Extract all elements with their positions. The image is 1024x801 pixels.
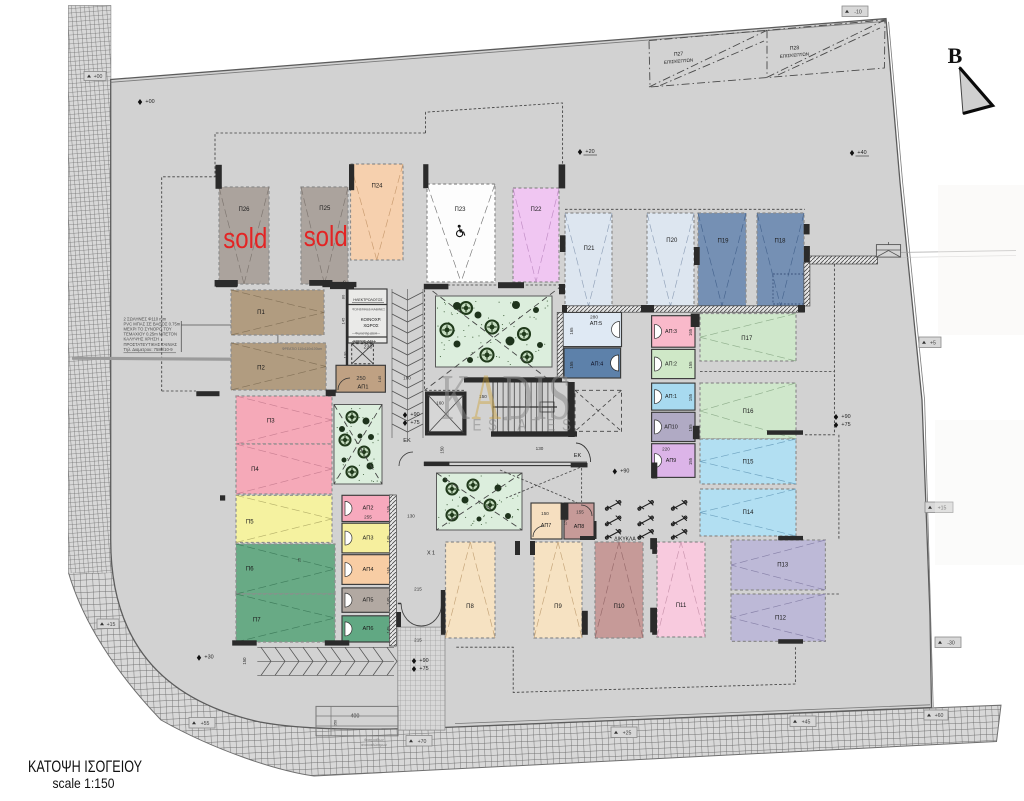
svg-text:+15: +15 — [107, 622, 116, 628]
svg-text:-30: -30 — [947, 640, 955, 646]
svg-text:155: 155 — [688, 393, 693, 401]
svg-text:Π23: Π23 — [454, 207, 466, 213]
svg-text:ΦΡΕΑΤΙΟ 110x110x100cm: ΦΡΕΑΤΙΟ 110x110x100cm — [282, 347, 322, 351]
svg-text:Π10: Π10 — [613, 604, 625, 610]
svg-text:-10: -10 — [854, 9, 862, 15]
svg-text:80: 80 — [341, 294, 346, 299]
svg-text:+75: +75 — [841, 422, 850, 428]
svg-text:Π13: Π13 — [777, 563, 789, 569]
svg-text:ανακυκλώσιμων: ανακυκλώσιμων — [361, 743, 387, 747]
svg-text:220: 220 — [662, 447, 670, 452]
svg-text:Π28: Π28 — [790, 45, 800, 52]
svg-text:050: 050 — [334, 720, 338, 726]
svg-text:ΚΟΙΝΟΧΡ.: ΚΟΙΝΟΧΡ. — [361, 317, 382, 322]
svg-text:+90: +90 — [410, 412, 419, 418]
svg-text:+5: +5 — [930, 340, 936, 346]
svg-text:Χ 1: Χ 1 — [427, 551, 435, 557]
svg-text:Π24: Π24 — [371, 184, 383, 190]
svg-text:Π12: Π12 — [775, 616, 787, 622]
svg-text:Π5: Π5 — [246, 520, 254, 526]
svg-text:ΑΠ:1: ΑΠ:1 — [665, 394, 677, 400]
svg-text:+40: +40 — [857, 150, 866, 156]
svg-text:ΑΠ9: ΑΠ9 — [666, 458, 677, 464]
svg-text:+25: +25 — [623, 730, 632, 736]
svg-text:155: 155 — [688, 361, 693, 369]
svg-text:Π19: Π19 — [717, 239, 729, 245]
svg-text:ESTATES: ESTATES — [473, 417, 578, 435]
svg-text:ΑΠ:5: ΑΠ:5 — [590, 321, 602, 327]
svg-text:+60: +60 — [935, 713, 944, 719]
svg-text:+45: +45 — [802, 719, 811, 725]
svg-text:Π4: Π4 — [251, 467, 259, 473]
svg-text:+90: +90 — [620, 469, 629, 475]
svg-text:Π11: Π11 — [676, 603, 687, 609]
svg-text:+75: +75 — [410, 420, 419, 426]
svg-text:ΑΠ:2: ΑΠ:2 — [665, 362, 677, 368]
svg-text:ΗΛΕΚΤΡΟΛΟΓΟΣ: ΗΛΕΚΤΡΟΛΟΓΟΣ — [353, 298, 383, 302]
svg-text:Π18: Π18 — [774, 239, 786, 245]
svg-text:ΑΠ:3: ΑΠ:3 — [665, 329, 677, 335]
svg-text:ΑΠ10: ΑΠ10 — [664, 424, 678, 430]
svg-text:ΑΠ2: ΑΠ2 — [363, 506, 374, 512]
svg-text:Π21: Π21 — [583, 246, 595, 252]
svg-text:ΑΠ3: ΑΠ3 — [363, 535, 374, 541]
svg-text:+90: +90 — [419, 658, 428, 664]
svg-text:155: 155 — [688, 457, 693, 465]
svg-text:θεση κάδων: θεση κάδων — [364, 738, 383, 742]
svg-text:ΔΙΚΥΚΛΑ: ΔΙΚΥΚΛΑ — [614, 537, 636, 543]
svg-text:255: 255 — [364, 515, 372, 520]
svg-text:Π26: Π26 — [238, 207, 250, 213]
svg-text:280: 280 — [590, 315, 598, 321]
svg-text:150: 150 — [541, 511, 549, 516]
svg-text:Π9: Π9 — [554, 604, 562, 610]
svg-text:Π2: Π2 — [257, 366, 265, 372]
svg-text:B: B — [948, 43, 963, 68]
svg-text:130: 130 — [407, 514, 415, 519]
svg-text:Τηλ. Διαμετρου: 7580/10-9: Τηλ. Διαμετρου: 7580/10-9 — [124, 347, 174, 352]
svg-text:Π25: Π25 — [319, 206, 331, 212]
svg-text:ΑΠ6: ΑΠ6 — [363, 626, 374, 632]
svg-text:150: 150 — [242, 657, 247, 665]
svg-text:Π6: Π6 — [246, 567, 254, 573]
svg-text:Π27: Π27 — [674, 51, 684, 58]
svg-text:145: 145 — [341, 317, 346, 324]
svg-text:Π16: Π16 — [742, 409, 754, 415]
svg-text:250: 250 — [356, 376, 365, 382]
svg-text:ΧΩΡΟΣ: ΧΩΡΟΣ — [363, 323, 379, 328]
svg-text:155: 155 — [688, 424, 693, 432]
svg-text:+30: +30 — [204, 655, 213, 661]
svg-text:215: 215 — [414, 638, 422, 643]
svg-text:180: 180 — [403, 376, 411, 381]
svg-text:ΑΠ8: ΑΠ8 — [574, 524, 585, 530]
svg-text:+00: +00 — [145, 99, 154, 105]
svg-text:scale 1:150: scale 1:150 — [53, 775, 115, 791]
svg-text:Π14: Π14 — [742, 510, 754, 516]
svg-text:165: 165 — [569, 327, 574, 335]
svg-text:+70: +70 — [418, 739, 427, 745]
svg-text:Π20: Π20 — [666, 238, 678, 244]
svg-text:+90: +90 — [841, 414, 850, 420]
svg-text:ΕΚ: ΕΚ — [403, 438, 411, 444]
svg-text:400: 400 — [351, 714, 360, 720]
svg-text:ΕΚ: ΕΚ — [574, 453, 582, 459]
svg-text:145: 145 — [377, 375, 382, 382]
svg-text:+55: +55 — [201, 721, 210, 727]
svg-text:Π7: Π7 — [253, 617, 261, 623]
svg-text:+00: +00 — [94, 74, 103, 80]
svg-text:ΑΠ:4: ΑΠ:4 — [591, 362, 603, 368]
svg-text:ΑΠ5: ΑΠ5 — [363, 597, 374, 603]
svg-text:+20: +20 — [585, 149, 594, 155]
svg-text:150: 150 — [440, 446, 445, 454]
svg-text:sold: sold — [223, 223, 267, 255]
svg-text:Π15: Π15 — [742, 460, 754, 466]
svg-text:155: 155 — [576, 510, 584, 515]
svg-text:Π17: Π17 — [741, 336, 753, 342]
svg-text:165: 165 — [688, 328, 693, 336]
svg-text:25: 25 — [298, 558, 302, 562]
svg-text:+75: +75 — [419, 666, 428, 672]
svg-text:ΑΠ1: ΑΠ1 — [358, 385, 369, 391]
svg-text:215: 215 — [414, 587, 422, 592]
svg-text:sold: sold — [304, 221, 348, 253]
svg-text:Π1: Π1 — [257, 310, 265, 316]
svg-text:Π3: Π3 — [267, 419, 275, 425]
svg-text:130: 130 — [536, 446, 544, 451]
svg-text:Π8: Π8 — [466, 604, 474, 610]
svg-text:ΚΑΤΟΨΗ ΙΣΟΓΕΙΟΥ: ΚΑΤΟΨΗ ΙΣΟΓΕΙΟΥ — [28, 758, 142, 776]
svg-text:Π22: Π22 — [530, 207, 542, 213]
svg-text:ΑΠ4: ΑΠ4 — [363, 567, 374, 573]
